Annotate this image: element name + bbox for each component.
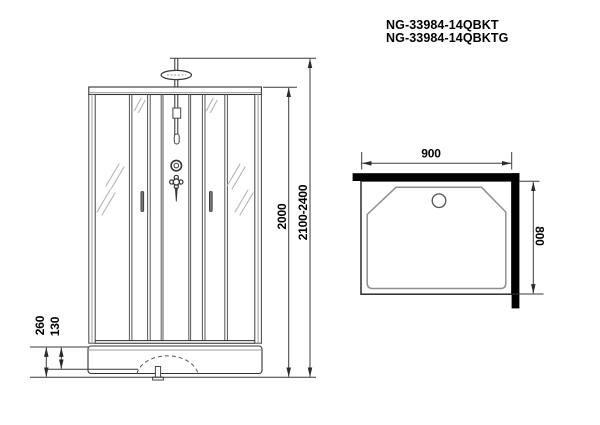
dim-label-260: 260 [33,315,47,335]
cabin-left-frame [89,95,95,344]
hand-shower-wand [174,134,179,144]
glass-panel-dividers [129,95,227,341]
dim-label-130: 130 [48,316,62,336]
cabin-top-bar [89,87,262,95]
left-door-handle [141,192,144,212]
dim-label-2000: 2000 [275,203,289,229]
shower-tray-base [88,346,262,380]
slider-holder [173,108,181,118]
front-view: 260 130 2000 2100-2400 [30,58,316,380]
right-door-handle [209,192,212,212]
dim-label-2100-2400: 2100-2400 [296,184,310,240]
cabin-right-frame [255,95,262,344]
shower-column [170,95,183,202]
drain-hole [432,194,446,208]
dim-label-800: 800 [533,226,547,246]
side-wall-bar [512,173,520,308]
technical-drawing: 260 130 2000 2100-2400 900 [0,0,600,425]
back-wall-bar [353,173,520,181]
diverter-handle [170,175,183,201]
front-view-dimensions: 260 130 2000 2100-2400 [30,58,316,377]
shower-head [161,70,191,79]
top-view: 900 800 [353,147,547,309]
drawing-canvas: NG-33984-14QBKT NG-33984-14QBKTG [0,0,600,425]
cabin-bottom-rail [95,341,255,344]
dim-label-900: 900 [421,147,441,161]
